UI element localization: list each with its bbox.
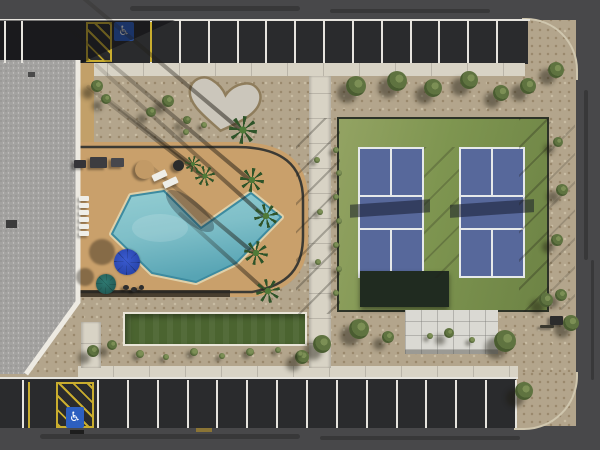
desert-tree — [91, 80, 103, 92]
stall-line — [425, 380, 427, 428]
fence-shadow-stripes — [424, 147, 459, 278]
desert-tree — [382, 331, 394, 343]
stall-line — [187, 380, 189, 428]
desert-shrub — [333, 147, 339, 153]
wheel-stop — [70, 430, 84, 434]
stall-line — [306, 380, 308, 428]
tire-mark — [40, 434, 300, 439]
deck-furniture — [173, 160, 184, 171]
desert-shrub — [336, 266, 342, 272]
deck-furniture — [90, 157, 107, 168]
tire-mark — [584, 90, 588, 260]
desert-tree — [494, 330, 516, 352]
stall-line — [4, 21, 6, 63]
desert-shrub — [183, 129, 189, 135]
stall-line — [366, 380, 368, 428]
deck-furniture — [74, 160, 86, 168]
desert-shrub — [314, 157, 320, 163]
center-line — [491, 229, 493, 278]
deck-furniture — [131, 287, 137, 292]
desert-shrub — [317, 209, 323, 215]
deck-furniture — [540, 325, 554, 328]
desert-shrub — [136, 350, 144, 358]
desert-tree — [553, 137, 563, 147]
desert-tree — [460, 71, 478, 89]
desert-tree — [146, 107, 156, 117]
aerial-photo-stage: ♿ ♿ — [0, 0, 600, 450]
desert-shrub — [336, 218, 342, 224]
stall-line — [323, 21, 325, 63]
umbrella-shadow — [76, 268, 94, 286]
desert-shrub — [246, 348, 254, 356]
desert-tree — [313, 335, 331, 353]
desert-shrub — [333, 194, 339, 200]
pool-highlight — [132, 214, 188, 242]
desert-tree — [87, 345, 99, 357]
desert-tree — [349, 319, 369, 339]
stall-line — [381, 21, 383, 63]
deck-furniture — [135, 160, 154, 179]
stall-line — [21, 21, 23, 63]
stall-line — [455, 380, 457, 428]
tire-mark — [330, 9, 490, 13]
palm-tree — [229, 116, 257, 144]
lounge-chair — [79, 203, 89, 208]
desert-tree — [387, 71, 407, 91]
deck-furniture — [550, 316, 563, 325]
stall-line — [97, 380, 99, 428]
stall-line — [496, 21, 498, 63]
patio-umbrella — [114, 249, 140, 275]
stall-line — [216, 380, 218, 428]
stall-line — [352, 21, 354, 63]
stall-line — [276, 380, 278, 428]
desert-shrub — [163, 354, 169, 360]
desert-shrub — [333, 242, 339, 248]
desert-tree — [162, 95, 174, 107]
desert-shrub — [427, 333, 433, 339]
lounge-chair — [79, 217, 89, 222]
center-line — [491, 147, 493, 197]
desert-tree — [563, 315, 579, 331]
deck-furniture — [111, 158, 124, 167]
center-line — [390, 147, 392, 197]
desert-tree — [107, 340, 117, 350]
yellow-stall-line — [28, 382, 30, 428]
desert-tree — [346, 76, 366, 96]
tire-mark — [591, 260, 594, 380]
lounge-chair — [79, 196, 89, 201]
desert-tree — [101, 94, 111, 104]
stall-line — [294, 21, 296, 63]
desert-shrub — [336, 170, 342, 176]
desert-tree — [551, 234, 563, 246]
stall-line — [410, 21, 412, 63]
bocce-court — [123, 312, 307, 346]
stall-line — [467, 21, 469, 63]
fence-shadow-stripes — [549, 122, 575, 310]
desert-tree — [424, 79, 442, 97]
stall-line — [157, 380, 159, 428]
stall-line — [127, 380, 129, 428]
clubhouse-roof — [0, 60, 78, 374]
lounge-chair — [79, 224, 89, 229]
desert-tree — [444, 328, 454, 338]
tire-mark — [320, 436, 520, 440]
desert-tree — [515, 382, 533, 400]
desert-shrub — [315, 259, 321, 265]
stall-line — [336, 380, 338, 428]
desert-tree — [493, 85, 509, 101]
stall-line — [265, 21, 267, 63]
desert-shrub — [219, 353, 225, 359]
desert-tree — [548, 62, 564, 78]
lounge-chair — [79, 210, 89, 215]
umbrella-shadow — [89, 239, 115, 265]
stall-line — [179, 21, 181, 63]
patio-umbrella — [96, 274, 116, 294]
desert-shrub — [297, 351, 303, 357]
stall-line — [396, 380, 398, 428]
stall-line — [438, 21, 440, 63]
deck-furniture — [139, 285, 144, 290]
lounge-chair — [79, 231, 89, 236]
desert-shrub — [469, 337, 475, 343]
desert-tree — [556, 184, 568, 196]
desert-shrub — [190, 348, 198, 356]
desert-tree — [539, 293, 553, 307]
tire-mark — [130, 6, 300, 11]
roof-vent — [28, 72, 35, 77]
stall-line — [485, 380, 487, 428]
stall-line — [22, 380, 24, 428]
roof-vent — [6, 220, 17, 228]
wheel-stop — [196, 428, 212, 432]
desert-shrub — [201, 122, 207, 128]
desert-shrub — [275, 347, 281, 353]
fence-shadow-stripes — [519, 118, 549, 312]
desert-tree — [520, 78, 536, 94]
desert-tree — [183, 116, 191, 124]
stall-line — [246, 380, 248, 428]
stall-line — [237, 21, 239, 63]
stucco-wall — [80, 63, 94, 147]
deck-furniture — [123, 285, 129, 290]
stall-line — [208, 21, 210, 63]
desert-shrub — [333, 290, 339, 296]
desert-tree — [555, 289, 567, 301]
